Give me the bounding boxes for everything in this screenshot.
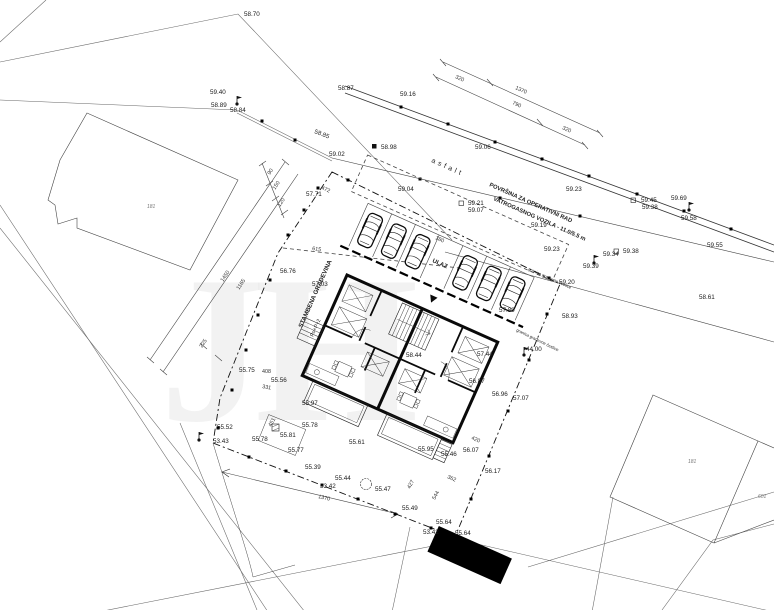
elevation-label: 59.34 [603, 251, 619, 258]
elevation-label: 56.96 [492, 391, 508, 398]
elevation-label: 59.38 [623, 248, 639, 255]
dimension-label: 120 [277, 197, 287, 208]
dimension-label: 472 [320, 185, 331, 194]
elevation-label: 55.46 [441, 451, 457, 458]
elevation-label: 55.64 [436, 519, 452, 526]
dimension-label: 150 [272, 180, 282, 191]
elevation-label: 59.69 [671, 195, 687, 202]
dimension-label: 544 [431, 490, 441, 501]
elevation-label: 53.42 [423, 529, 439, 536]
elevation-label: 59.40 [210, 89, 226, 96]
elevation-label: 59.45 [641, 197, 657, 204]
site-plan-svg: JH [0, 0, 774, 610]
elevation-label: 58.98 [381, 144, 397, 151]
elevation-label: 55.97 [302, 400, 318, 407]
annotation-label: ULAZ [431, 258, 448, 270]
elevation-label: 57.71 [306, 191, 322, 198]
elevation-label: 59.16 [400, 91, 416, 98]
dimension-label: 420 [470, 435, 481, 444]
elevation-label: 59.39 [583, 263, 599, 270]
elevation-label: 59.06 [475, 144, 491, 151]
elevation-label: 55.49 [402, 505, 418, 512]
dimension-label: 1370 [514, 85, 527, 95]
parcel-label: 601 [758, 494, 767, 500]
annotation-label: asfalt [430, 157, 465, 178]
elevation-label: 55.64 [455, 530, 471, 537]
dimension-label: 615 [312, 246, 322, 253]
elevation-label: 59.04 [398, 186, 414, 193]
annotation-label: 58.85 [313, 128, 330, 140]
elevation-label: 57.89 [499, 307, 515, 314]
site-plan-page: JH [0, 0, 774, 610]
elevation-label: 59.21 [468, 200, 484, 207]
dimension-label: 408 [262, 369, 271, 375]
elevation-label: 56.17 [485, 468, 501, 475]
dimension-label: 320 [454, 74, 465, 83]
elevation-label: 58.93 [562, 313, 578, 320]
elevation-label: 57.44 [477, 351, 493, 358]
elevation-label: 58.89 [211, 102, 227, 109]
elevation-label: 58.70 [244, 11, 260, 18]
dimension-label: 790 [511, 100, 522, 109]
dimension-label: 90 [267, 168, 275, 176]
elevation-label: 56.87 [469, 378, 485, 385]
elevation-label: 55.81 [280, 432, 296, 439]
elevation-label: 55.61 [349, 439, 365, 446]
dimension-label: 320 [561, 125, 572, 134]
elevation-label: 55.95 [418, 446, 434, 453]
elevation-label: 58.44 [406, 352, 422, 359]
elevation-label: 57.07 [513, 395, 529, 402]
elevation-label: 56.07 [463, 447, 479, 454]
elevation-label: 55.44 [335, 475, 351, 482]
elevation-label: 59.02 [329, 151, 345, 158]
elevation-label: 59.23 [566, 186, 582, 193]
elevation-label: 59.07 [468, 207, 484, 214]
tree-icon [361, 479, 372, 490]
elevation-label: 59.38 [642, 204, 658, 211]
elevation-label: 59.55 [707, 242, 723, 249]
elevation-label: 44.00 [526, 346, 542, 353]
elevation-label: 56.76 [280, 268, 296, 275]
survey-point-markers [261, 106, 733, 231]
elevation-label: 59.58 [681, 215, 697, 222]
benchmark-flag-icon [687, 202, 694, 212]
neighbor-building-se [610, 395, 774, 543]
elevation-label: 55.52 [217, 424, 233, 431]
elevation-label: 53.42 [320, 483, 336, 490]
parcel-label: 181 [688, 459, 697, 465]
manhole-square-icon [372, 144, 377, 149]
entrance-arrow-icon [427, 295, 437, 305]
elevation-label: 58.61 [699, 294, 715, 301]
parcel-label: 181 [147, 204, 156, 210]
elevation-label: 55.56 [271, 377, 287, 384]
elevation-label: 55.75 [239, 367, 255, 374]
benchmark-flag-icon [235, 96, 242, 106]
elevation-label: 55.77 [288, 447, 304, 454]
manhole-square-icon [459, 201, 464, 206]
elevation-label: 53.43 [213, 438, 229, 445]
elevation-label: 58.84 [230, 107, 246, 114]
elevation-label: 55.39 [305, 464, 321, 471]
dimension-label: 427 [406, 479, 416, 490]
dimension-label: 362 [446, 474, 457, 483]
elevation-label: 55.78 [302, 422, 318, 429]
elevation-label: 58.87 [338, 85, 354, 92]
dimension-label: 1370 [318, 494, 331, 503]
elevation-label: 59.23 [544, 246, 560, 253]
elevation-label: 55.78 [252, 436, 268, 443]
elevation-label: 55.47 [375, 486, 391, 493]
